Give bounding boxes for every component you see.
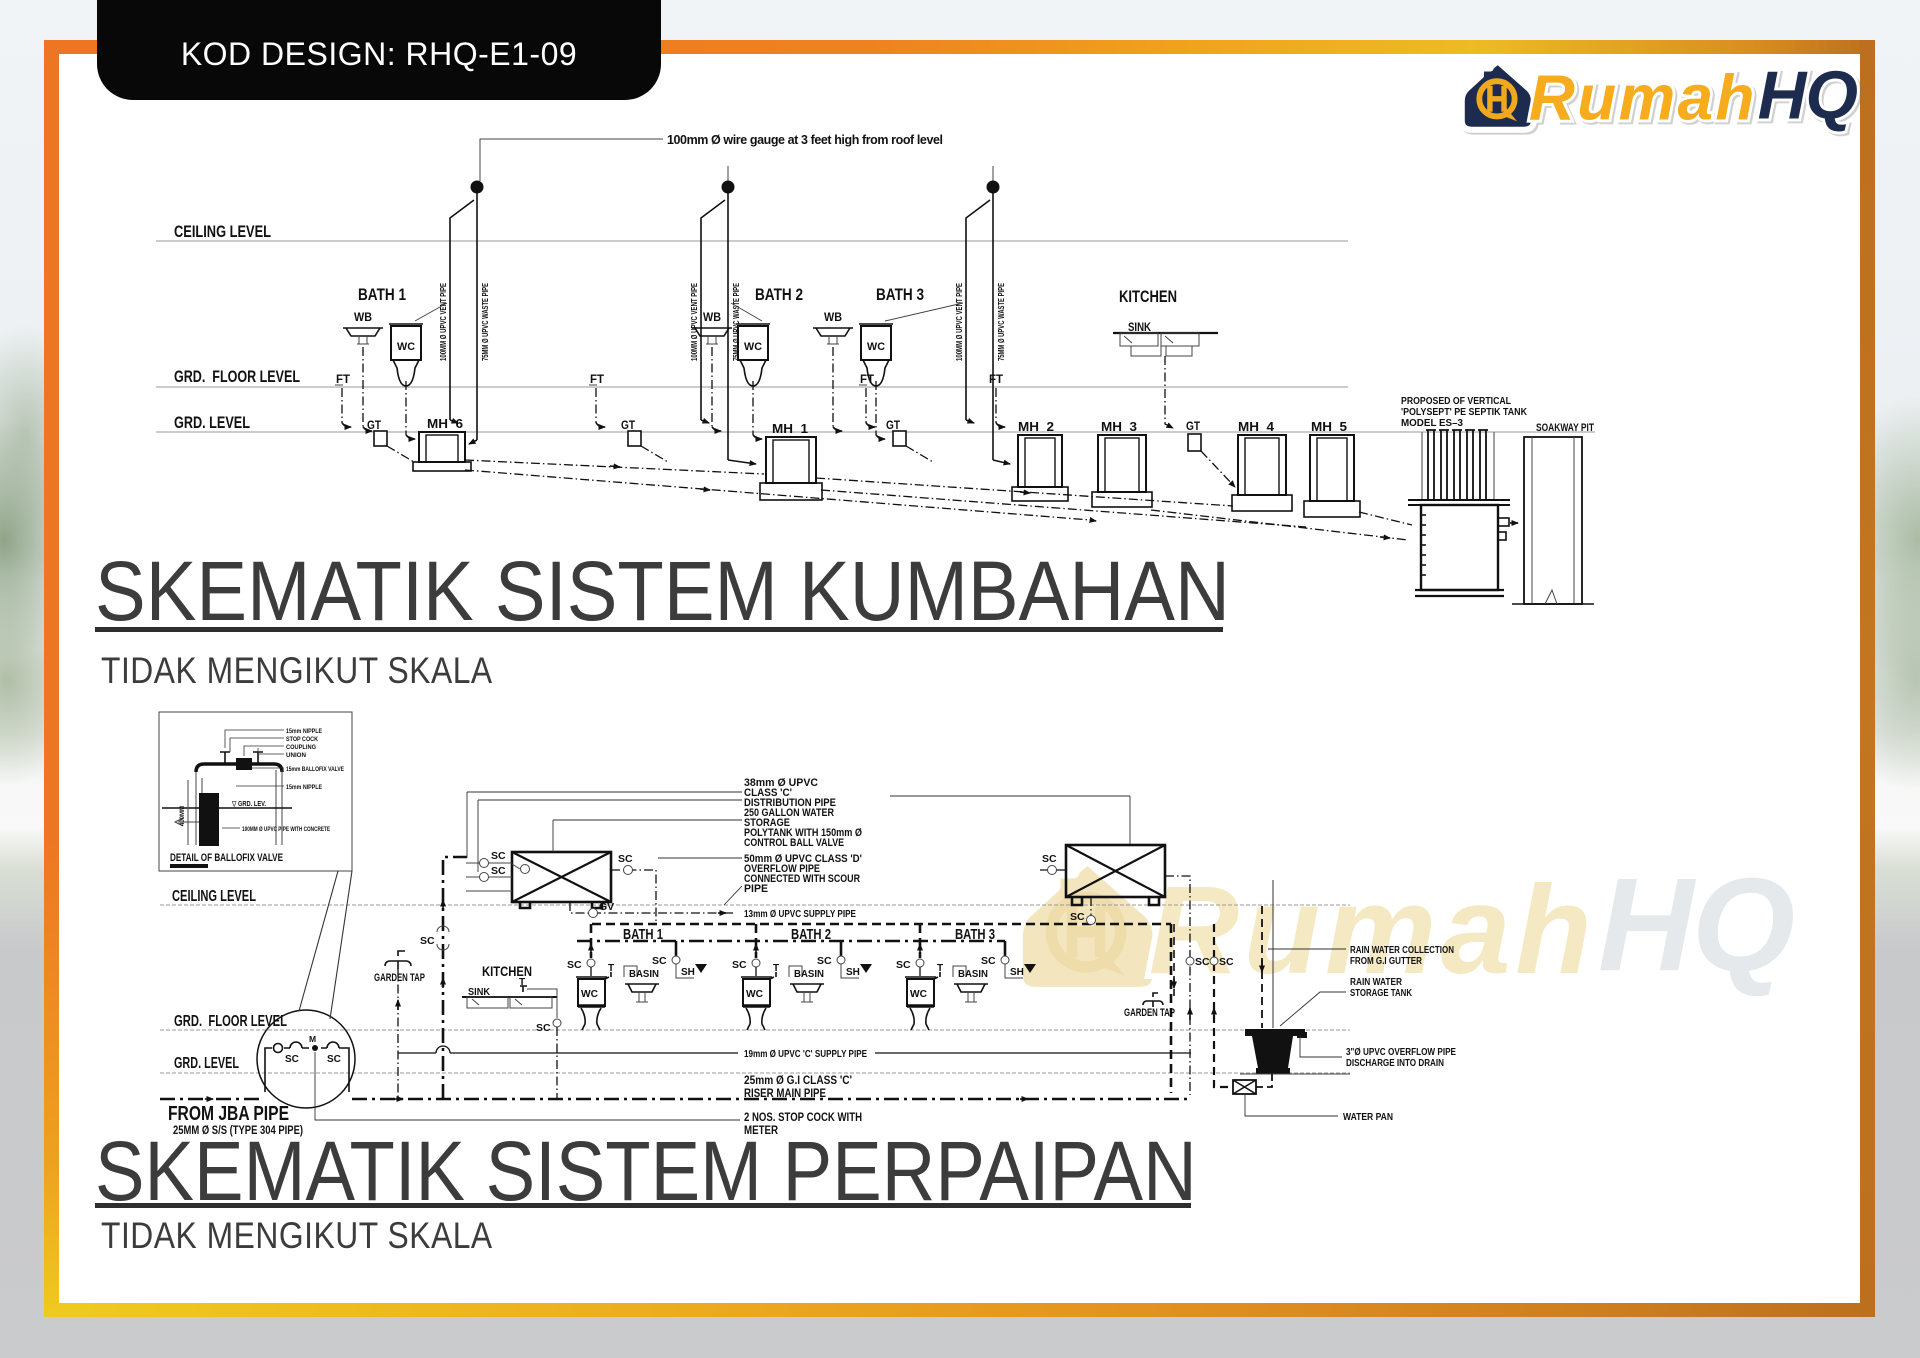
svg-text:DISCHARGE INTO DRAIN: DISCHARGE INTO DRAIN <box>1346 1057 1444 1069</box>
svg-text:GT: GT <box>1186 421 1200 433</box>
svg-text:SC: SC <box>491 850 506 862</box>
svg-text:SC: SC <box>1195 956 1210 968</box>
svg-text:SC: SC <box>1219 956 1234 968</box>
svg-text:15mm NIPPLE: 15mm NIPPLE <box>286 728 323 735</box>
svg-text:GRD. FLOOR LEVEL: GRD. FLOOR LEVEL <box>174 1013 287 1030</box>
svg-text:WC: WC <box>746 989 763 1000</box>
svg-text:BATH 1: BATH 1 <box>623 927 663 943</box>
svg-text:UNION: UNION <box>286 752 306 759</box>
svg-text:SC: SC <box>817 955 832 967</box>
svg-text:100MM Ø UPVC VENT PIPE: 100MM Ø UPVC VENT PIPE <box>689 283 699 361</box>
svg-text:100MM Ø UPVC VENT PIPE: 100MM Ø UPVC VENT PIPE <box>438 283 448 361</box>
svg-text:19mm Ø UPVC 'C' SUPPLY PIPE: 19mm Ø UPVC 'C' SUPPLY PIPE <box>744 1048 867 1060</box>
svg-text:M: M <box>309 1034 316 1044</box>
svg-text:SH: SH <box>681 967 695 978</box>
svg-text:BASIN: BASIN <box>958 969 988 980</box>
svg-text:KITCHEN: KITCHEN <box>1119 287 1177 306</box>
svg-text:100MM Ø UPVC PIPE WITH CONCRET: 100MM Ø UPVC PIPE WITH CONCRETE <box>242 826 330 833</box>
svg-text:CEILING LEVEL: CEILING LEVEL <box>174 223 271 241</box>
svg-text:▽ GRD. LEV.: ▽ GRD. LEV. <box>231 801 266 808</box>
svg-text:WB: WB <box>703 312 721 324</box>
svg-text:SC: SC <box>652 955 667 967</box>
svg-text:MH 3: MH 3 <box>1101 419 1137 434</box>
svg-text:WATER PAN: WATER PAN <box>1343 1111 1393 1123</box>
svg-text:75MM Ø UPVC WASTE PIPE: 75MM Ø UPVC WASTE PIPE <box>731 283 741 361</box>
svg-text:CEILING LEVEL: CEILING LEVEL <box>172 888 256 905</box>
svg-text:100MM Ø UPVC VENT PIPE: 100MM Ø UPVC VENT PIPE <box>954 283 964 361</box>
svg-text:MODEL ES–3: MODEL ES–3 <box>1401 417 1463 429</box>
svg-text:WC: WC <box>581 989 598 1000</box>
svg-text:SC: SC <box>618 853 633 865</box>
svg-text:15mm BALLOFIX VALVE: 15mm BALLOFIX VALVE <box>286 766 345 773</box>
svg-text:WC: WC <box>867 341 885 353</box>
svg-text:SC: SC <box>327 1054 341 1065</box>
svg-text:13mm Ø UPVC SUPPLY PIPE: 13mm Ø UPVC SUPPLY PIPE <box>744 908 856 920</box>
svg-text:FROM G.I GUTTER: FROM G.I GUTTER <box>1350 955 1422 967</box>
svg-text:15mm NIPPLE: 15mm NIPPLE <box>286 784 323 791</box>
svg-text:PIPE: PIPE <box>744 883 768 895</box>
svg-text:SC: SC <box>420 935 435 947</box>
svg-text:SC: SC <box>896 959 911 971</box>
svg-text:SC: SC <box>981 955 996 967</box>
svg-text:GARDEN TAP: GARDEN TAP <box>374 972 425 984</box>
svg-text:FT: FT <box>336 374 350 386</box>
svg-text:MH 6: MH 6 <box>427 416 463 431</box>
svg-text:SC: SC <box>536 1022 551 1034</box>
svg-text:WC: WC <box>910 989 927 1000</box>
svg-text:GRD. LEVEL: GRD. LEVEL <box>174 414 250 432</box>
svg-text:COUPLING: COUPLING <box>286 744 316 751</box>
svg-text:75MM Ø UPVC WASTE PIPE: 75MM Ø UPVC WASTE PIPE <box>480 283 490 361</box>
svg-text:GRD. FLOOR LEVEL: GRD. FLOOR LEVEL <box>174 368 300 386</box>
svg-text:BASIN: BASIN <box>629 969 659 980</box>
svg-text:100mm Ø wire gauge at 3 feet h: 100mm Ø wire gauge at 3 feet high from r… <box>667 133 943 147</box>
svg-text:GARDEN TAP: GARDEN TAP <box>1124 1007 1175 1019</box>
svg-text:BATH 2: BATH 2 <box>791 927 831 943</box>
svg-text:FT: FT <box>860 374 874 386</box>
svg-text:SC: SC <box>1042 853 1057 865</box>
svg-text:STOP COCK: STOP COCK <box>286 736 318 743</box>
svg-text:MH 2: MH 2 <box>1018 419 1054 434</box>
svg-text:CONTROL BALL VALVE: CONTROL BALL VALVE <box>744 837 844 849</box>
svg-text:75MM Ø UPVC WASTE PIPE: 75MM Ø UPVC WASTE PIPE <box>996 283 1006 361</box>
svg-text:SC: SC <box>491 865 506 877</box>
svg-text:25mm Ø G.I CLASS 'C': 25mm Ø G.I CLASS 'C' <box>744 1073 852 1087</box>
svg-text:SC: SC <box>285 1054 299 1065</box>
svg-text:DETAIL OF BALLOFIX VALVE: DETAIL OF BALLOFIX VALVE <box>170 852 283 864</box>
svg-text:FT: FT <box>989 374 1003 386</box>
svg-text:MH 5: MH 5 <box>1311 419 1347 434</box>
svg-text:BATH 3: BATH 3 <box>955 927 995 943</box>
svg-text:FROM JBA PIPE: FROM JBA PIPE <box>168 1103 289 1125</box>
svg-text:WB: WB <box>354 312 372 324</box>
svg-text:SOAKWAY PIT: SOAKWAY PIT <box>1536 422 1594 434</box>
svg-text:2 NOS. STOP COCK WITH: 2 NOS. STOP COCK WITH <box>744 1110 862 1124</box>
svg-text:WC: WC <box>744 341 762 353</box>
svg-text:SC: SC <box>732 959 747 971</box>
svg-text:SH: SH <box>846 967 860 978</box>
svg-text:MH 1: MH 1 <box>772 421 808 436</box>
svg-text:SC: SC <box>567 959 582 971</box>
svg-text:BASIN: BASIN <box>794 969 824 980</box>
svg-text:400MM: 400MM <box>180 806 186 826</box>
svg-text:RISER MAIN PIPE: RISER MAIN PIPE <box>744 1086 826 1100</box>
svg-text:WC: WC <box>397 341 415 353</box>
svg-text:SC: SC <box>1070 911 1085 923</box>
svg-text:SH: SH <box>1010 967 1024 978</box>
svg-text:FT: FT <box>590 374 604 386</box>
svg-text:GV: GV <box>599 901 614 913</box>
svg-text:BATH 1: BATH 1 <box>358 285 406 304</box>
svg-text:MH 4: MH 4 <box>1238 419 1275 434</box>
svg-text:BATH 3: BATH 3 <box>876 285 924 304</box>
svg-text:STORAGE TANK: STORAGE TANK <box>1350 987 1412 999</box>
svg-text:WB: WB <box>824 312 842 324</box>
svg-text:GRD. LEVEL: GRD. LEVEL <box>174 1055 239 1072</box>
svg-text:BATH 2: BATH 2 <box>755 285 803 304</box>
